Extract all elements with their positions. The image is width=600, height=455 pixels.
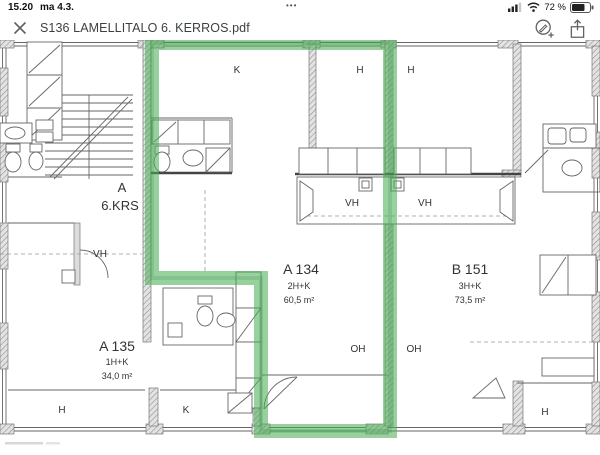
room-label: 1H+K	[106, 357, 129, 367]
room-label: H	[356, 65, 363, 76]
room-label: H	[58, 405, 65, 416]
room-label: H	[407, 65, 414, 76]
room-label: OH	[351, 344, 366, 355]
room-label: B 151	[452, 261, 489, 277]
document-title: S136 LAMELLITALO 6. KERROS.pdf	[40, 21, 250, 35]
room-label: A 134	[283, 261, 319, 277]
pdf-canvas[interactable]: KHHA6.KRSVHVHVHA 1351H+K34,0 m²A 1342H+K…	[0, 40, 600, 450]
plan-labels: KHHA6.KRSVHVHVHA 1351H+K34,0 m²A 1342H+K…	[58, 65, 548, 418]
kitchen-and-closets	[297, 148, 515, 224]
a134-bathroom-fixtures	[151, 118, 232, 173]
share-icon[interactable]	[567, 18, 588, 39]
room-label: 2H+K	[288, 281, 311, 291]
wifi-icon	[527, 2, 540, 12]
room-label: K	[234, 65, 241, 76]
room-label: 73,5 m²	[455, 295, 486, 305]
close-icon[interactable]	[13, 21, 27, 35]
room-label: H	[541, 407, 548, 418]
highlight-annotation	[152, 43, 390, 431]
b151-fixtures	[473, 124, 600, 398]
room-label: 3H+K	[459, 281, 482, 291]
room-label: OH	[407, 344, 422, 355]
pdf-viewer-toolbar: S136 LAMELLITALO 6. KERROS.pdf	[0, 14, 600, 42]
core-bathroom-fixtures	[0, 42, 62, 172]
room-label: A	[118, 180, 127, 195]
battery-percent: 72 %	[544, 2, 566, 13]
room-label: VH	[418, 198, 432, 209]
room-label: VH	[93, 249, 107, 260]
room-label: A 135	[99, 338, 135, 354]
status-date: ma 4.3.	[40, 2, 74, 13]
cellular-signal-icon	[508, 2, 523, 12]
interior-walls	[8, 40, 592, 426]
status-center-dots: •••	[286, 1, 297, 10]
room-label: VH	[345, 198, 359, 209]
drawing-stamp	[5, 442, 60, 445]
room-label: 34,0 m²	[102, 371, 133, 381]
floor-plan-drawing: KHHA6.KRSVHVHVHA 1351H+K34,0 m²A 1342H+K…	[0, 40, 600, 450]
room-label: 60,5 m²	[284, 295, 315, 305]
room-label: K	[183, 405, 190, 416]
battery-icon	[570, 2, 594, 13]
room-label: 6.KRS	[101, 198, 139, 213]
markup-annotate-icon[interactable]	[534, 18, 555, 39]
status-time: 15.20	[8, 2, 33, 13]
status-bar: 15.20 ma 4.3. ••• 72 %	[0, 0, 600, 14]
